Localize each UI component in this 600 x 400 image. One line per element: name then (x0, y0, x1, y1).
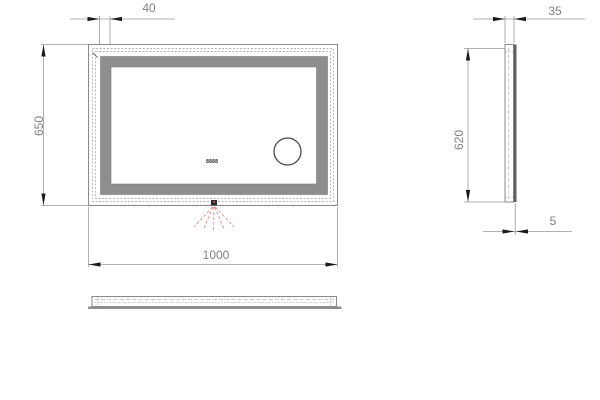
dim-label-height: 650 (32, 106, 46, 146)
dimension-height (41, 45, 89, 206)
arrowhead (326, 262, 338, 266)
bottom-view (88, 297, 342, 310)
arrowhead (514, 17, 526, 21)
technical-drawing (0, 0, 600, 400)
motion-sensor (211, 200, 217, 206)
side-profile-body (505, 45, 514, 203)
magnifier-mirror (274, 138, 301, 165)
arrowhead (493, 17, 505, 21)
side-profile-glass (514, 45, 517, 203)
dimension-depth (473, 16, 585, 43)
arrowhead (516, 229, 528, 233)
arrowhead (89, 262, 101, 266)
dim-label-led-height: 620 (452, 120, 466, 160)
arrowhead (110, 17, 122, 21)
bottom-profile-glass (88, 307, 342, 310)
sensor-rays-icon (194, 207, 234, 230)
dim-label-glass-thickness: 5 (533, 214, 573, 228)
dimension-led-height (464, 49, 505, 203)
motion-sensor-led (213, 201, 215, 203)
arrowhead (466, 190, 470, 202)
mirror-surface (111, 67, 317, 184)
dim-label-depth: 35 (535, 4, 575, 18)
front-view (89, 45, 338, 231)
dim-label-frame-width: 40 (129, 1, 169, 15)
arrowhead (503, 229, 515, 233)
side-view (505, 45, 517, 203)
clock-display: 8888 (204, 159, 220, 165)
arrowhead (41, 194, 45, 206)
bottom-profile-body (92, 297, 337, 307)
drawing-canvas: 40 650 1000 35 620 5 8888 (0, 0, 600, 400)
dim-label-width: 1000 (196, 248, 236, 262)
corner-miter-mark (93, 53, 98, 58)
dimension-frame-width (70, 16, 175, 44)
arrowhead (466, 49, 470, 61)
arrowhead (41, 45, 45, 57)
arrowhead (88, 17, 100, 21)
